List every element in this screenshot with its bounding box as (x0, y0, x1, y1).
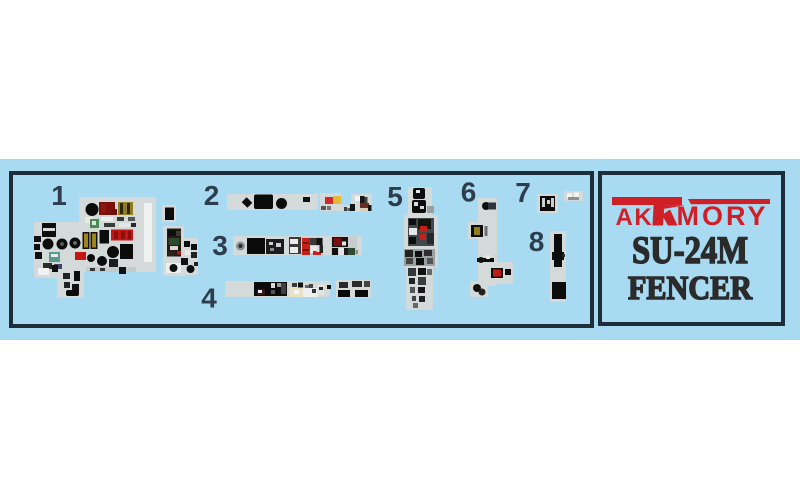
svg-text:5: 5 (387, 181, 403, 212)
svg-text:8: 8 (529, 226, 545, 257)
svg-text:1: 1 (51, 180, 67, 211)
svg-text:MORY: MORY (677, 201, 769, 231)
svg-text:2: 2 (204, 180, 220, 211)
svg-text:SU-24M: SU-24M (632, 229, 748, 272)
svg-text:3: 3 (212, 230, 228, 261)
svg-text:6: 6 (461, 177, 477, 208)
svg-text:FENCER: FENCER (628, 270, 752, 307)
svg-text:AK: AK (616, 204, 654, 231)
svg-text:4: 4 (201, 283, 217, 314)
svg-text:7: 7 (515, 177, 531, 208)
